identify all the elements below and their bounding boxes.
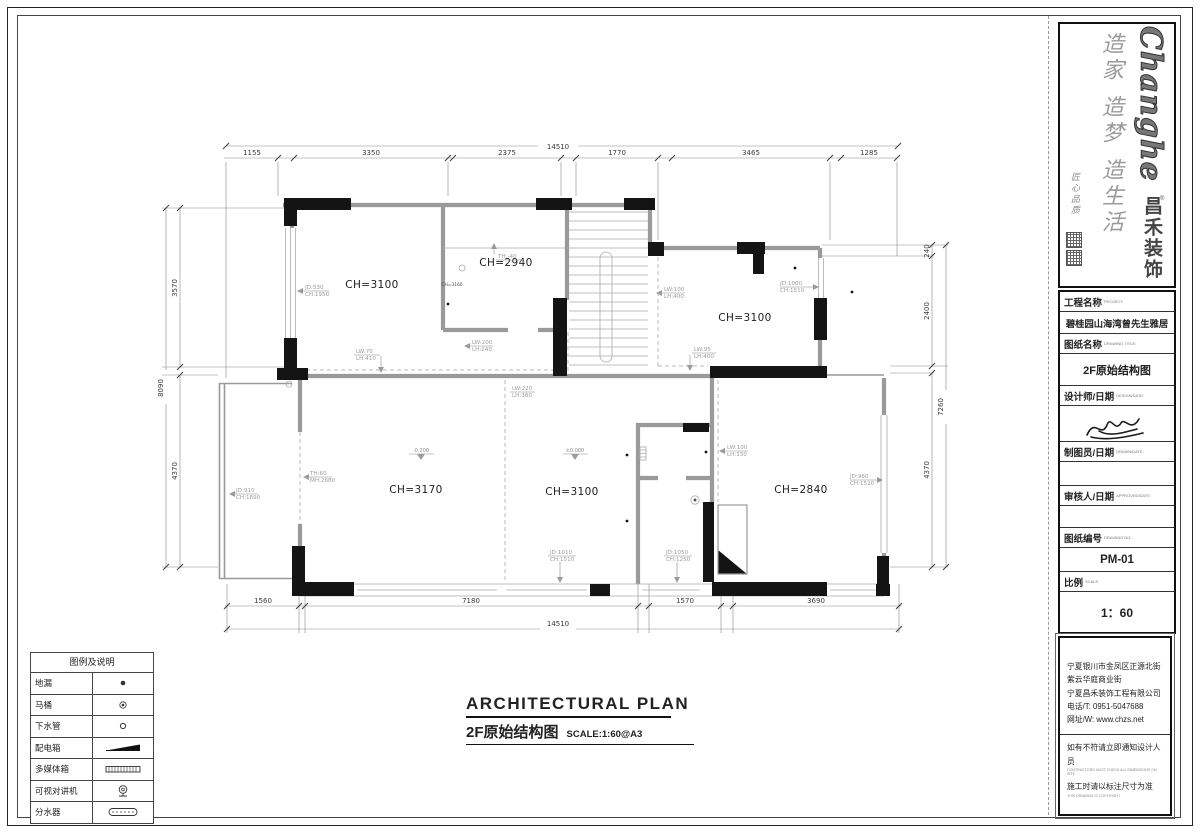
svg-text:7260: 7260 — [937, 398, 945, 416]
drafter-value-empty — [1060, 462, 1174, 486]
svg-text:JD:1000: JD:1000 — [779, 281, 803, 287]
floor-drain-icon — [103, 676, 143, 690]
svg-text:2400: 2400 — [923, 302, 931, 320]
video-intercom-icon — [103, 784, 143, 798]
drawing-sheet: { "brand": { "logo_en": "Changhe", "logo… — [0, 0, 1200, 833]
svg-text:CH=3170: CH=3170 — [389, 484, 443, 496]
legend-row-drain-pipe: 下水管 — [31, 716, 153, 738]
drawing-no-value: PM-01 — [1060, 548, 1174, 572]
note-1: 如有不符请立即通知设计人员 — [1067, 741, 1163, 768]
svg-text:CH:1520: CH:1520 — [850, 481, 875, 487]
svg-text:8090: 8090 — [157, 379, 165, 397]
svg-text:LH:400: LH:400 — [664, 294, 684, 300]
legend-table: 图例及说明 地漏 马桶 下水管 配电箱 多媒体箱 可视对讲机 分水器 — [30, 652, 154, 824]
legend-row-toilet: 马桶 — [31, 695, 153, 717]
svg-text:7180: 7180 — [462, 597, 480, 605]
brand-tagline: 匠心品质 — [1068, 172, 1081, 216]
note-2-en: THIS DRAWING IS COPYRIGHT — [1067, 794, 1163, 798]
toilet-icon — [103, 698, 143, 712]
legend-row-water-manifold: 分水器 — [31, 802, 153, 823]
svg-text:JD:1010: JD:1010 — [549, 550, 573, 556]
divider — [1060, 734, 1170, 735]
floor-plan: 14510 1155 3350 2375 1770 3465 1285 1560… — [140, 120, 1020, 660]
svg-text:-0.200: -0.200 — [413, 448, 429, 454]
svg-text:CH:1250: CH:1250 — [666, 557, 691, 563]
svg-text:1770: 1770 — [608, 149, 626, 157]
svg-text:CH=2840: CH=2840 — [774, 484, 828, 496]
svg-text:CH=3100: CH=3100 — [545, 486, 599, 498]
svg-text:1155: 1155 — [243, 149, 261, 157]
svg-text:4370: 4370 — [171, 462, 179, 480]
svg-text:LH:400: LH:400 — [694, 354, 714, 360]
dimension-top: 14510 1155 3350 2375 1770 3465 1285 — [223, 143, 901, 161]
dimension-bottom: 1560 7180 1570 3690 14510 — [224, 597, 902, 632]
note-2: 施工时请以标注尺寸为准 — [1067, 780, 1163, 793]
sheet-title: ARCHITECTURAL PLAN 2F原始结构图 SCALE:1:60@A3 — [466, 694, 716, 745]
svg-text:4370: 4370 — [923, 461, 931, 479]
company-address-2: 紫云华庭商业街 — [1067, 673, 1163, 686]
svg-text:LW:95: LW:95 — [694, 347, 711, 353]
sheet-title-en: ARCHITECTURAL PLAN — [466, 694, 671, 718]
svg-text:TH:-40: TH:-40 — [497, 254, 517, 260]
panel-divider-dashed-line — [1048, 16, 1049, 815]
legend-row-distribution-box: 配电箱 — [31, 738, 153, 760]
scale-label: 比例 SCALE: — [1060, 572, 1174, 592]
svg-text:±0.000: ±0.000 — [566, 448, 585, 454]
svg-text:CH=3100: CH=3100 — [718, 312, 772, 324]
svg-text:LW:70: LW:70 — [356, 349, 373, 355]
designer-label: 设计师/日期 DESIGN/DATE: — [1060, 386, 1174, 406]
level-markers: -0.200 ±0.000 — [409, 448, 588, 460]
signature-icon — [1077, 407, 1157, 441]
project-label: 工程名称 PROJECT: — [1060, 292, 1174, 312]
svg-text:LH:410: LH:410 — [356, 356, 376, 362]
brand-slogan: 造家 造梦 造生活 — [1094, 32, 1126, 236]
svg-text:3690: 3690 — [807, 597, 825, 605]
drawing-title-value: 2F原始结构图 — [1060, 354, 1174, 386]
svg-text:CH=3100: CH=3100 — [345, 279, 399, 291]
svg-text:JD:530: JD:530 — [304, 285, 324, 291]
scale-value: 1：60 — [1060, 592, 1174, 632]
svg-text:CH:1510: CH:1510 — [780, 288, 805, 294]
svg-text:2375: 2375 — [498, 149, 516, 157]
multimedia-box-icon — [103, 762, 143, 776]
project-value: 碧桂园山海湾曾先生雅居 — [1060, 312, 1174, 334]
drafter-label: 制图员/日期 DRAWN/DATE: — [1060, 442, 1174, 462]
note-1-en: CONTRACTORS MUST CHECK ALL DIMENSIONS ON… — [1067, 768, 1163, 777]
seal-stamp-1 — [1066, 232, 1082, 248]
company-address-1: 宁夏银川市金凤区正源北街 — [1067, 660, 1163, 673]
svg-text:LW:100: LW:100 — [727, 445, 748, 451]
company-name: 宁夏昌禾装饰工程有限公司 — [1067, 687, 1163, 700]
staircase — [569, 212, 648, 365]
approver-value-empty — [1060, 506, 1174, 528]
svg-text:1285: 1285 — [860, 149, 878, 157]
svg-text:JD:960: JD:960 — [849, 474, 869, 480]
svg-text:240: 240 — [923, 244, 931, 257]
company-info-box: 宁夏银川市金凤区正源北街 紫云华庭商业街 宁夏昌禾装饰工程有限公司 电话/T: … — [1058, 636, 1172, 816]
svg-text:MH:2680: MH:2680 — [310, 478, 336, 484]
svg-text:JD:910: JD:910 — [235, 488, 255, 494]
legend-row-floor-drain: 地漏 — [31, 673, 153, 695]
svg-text:LW:200: LW:200 — [472, 340, 493, 346]
svg-text:LW:220: LW:220 — [512, 386, 533, 392]
drain-pipe-icon — [103, 719, 143, 733]
svg-text:LH:380: LH:380 — [512, 393, 532, 399]
walls — [219, 205, 887, 596]
company-phone: 电话/T: 0951-5047688 — [1067, 700, 1163, 713]
registered-mark: ® — [1160, 196, 1164, 202]
company-website: 网址/W: www.chzs.net — [1067, 713, 1163, 726]
svg-text:CH:1950: CH:1950 — [305, 292, 330, 298]
legend-row-multimedia-box: 多媒体箱 — [31, 759, 153, 781]
svg-text:CH:1510: CH:1510 — [550, 557, 575, 563]
opening-annotations: JD:530CH:1950 LW:70LH:410 LW:200LH:240 L… — [229, 243, 883, 583]
svg-text:14510: 14510 — [547, 143, 569, 151]
svg-text:1560: 1560 — [254, 597, 272, 605]
svg-text:JD:1050: JD:1050 — [665, 550, 689, 556]
svg-text:CH=3160: CH=3160 — [441, 282, 462, 288]
dimension-left: 3570 4370 8090 — [157, 205, 183, 570]
brand-logo-text: Changhe — [1133, 26, 1168, 194]
svg-text:LW:100: LW:100 — [664, 287, 685, 293]
sheet-title-scale: SCALE:1:60@A3 — [567, 729, 643, 740]
svg-text:1570: 1570 — [676, 597, 694, 605]
columns — [277, 198, 890, 596]
water-manifold-icon — [103, 805, 143, 819]
seal-stamp-2 — [1066, 250, 1082, 266]
legend-row-video-intercom: 可视对讲机 — [31, 781, 153, 803]
designer-signature — [1060, 406, 1174, 442]
svg-text:3570: 3570 — [171, 279, 179, 297]
approver-label: 审核人/日期 APPROVED/DATE: — [1060, 486, 1174, 506]
title-block: 工程名称 PROJECT: 碧桂园山海湾曾先生雅居 图纸名称 DRAWING T… — [1058, 290, 1176, 634]
dimension-right: 240 2400 4370 7260 — [923, 242, 949, 570]
svg-text:LH:130: LH:130 — [727, 452, 747, 458]
legend-title: 图例及说明 — [31, 653, 153, 673]
drawing-no-label: 图纸编号 DRAWING NO.: — [1060, 528, 1174, 548]
distribution-box-icon — [103, 741, 143, 755]
drawing-title-label: 图纸名称 DRAWING TITLE: — [1060, 334, 1174, 354]
brand-name-cn: 昌禾装饰 — [1138, 196, 1165, 280]
svg-text:CH:1890: CH:1890 — [236, 495, 261, 501]
svg-text:3465: 3465 — [742, 149, 760, 157]
sheet-title-cn: 2F原始结构图 — [466, 721, 559, 742]
svg-text:LH:240: LH:240 — [472, 347, 492, 353]
svg-text:14510: 14510 — [547, 620, 569, 628]
svg-text:3350: 3350 — [362, 149, 380, 157]
svg-text:TH:60: TH:60 — [309, 471, 327, 477]
